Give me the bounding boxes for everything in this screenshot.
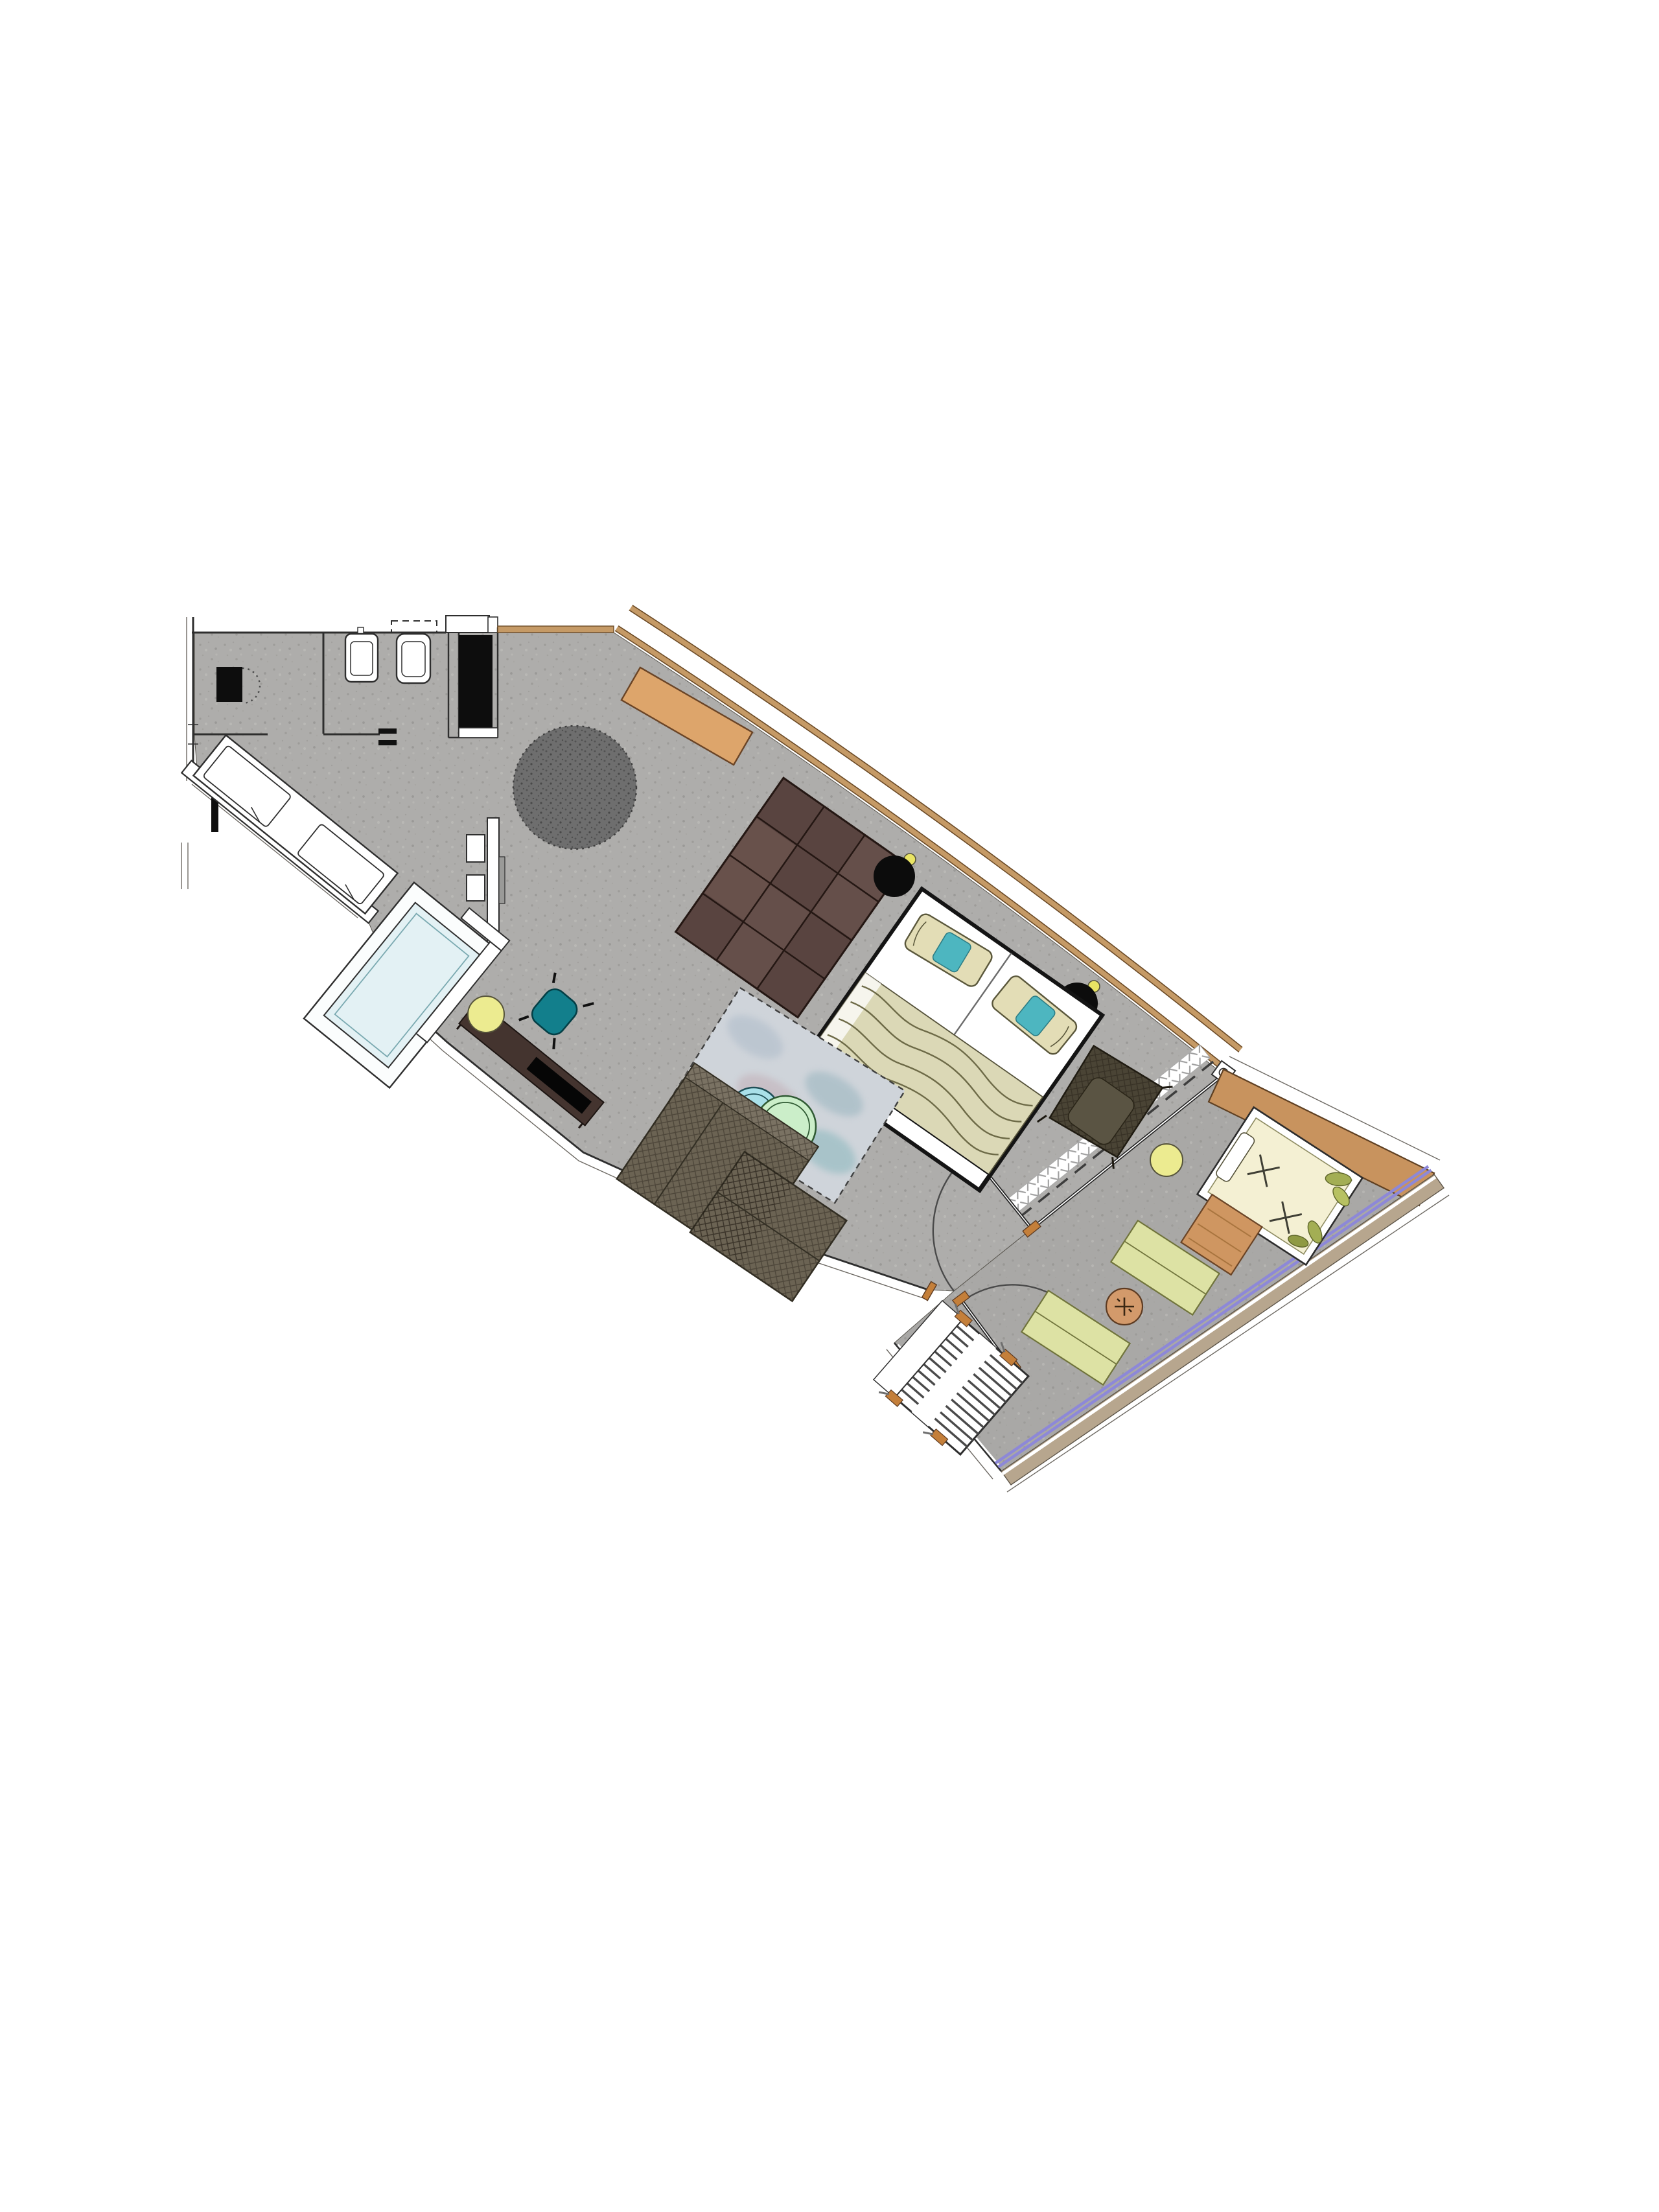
grill-side-table bbox=[1106, 1288, 1143, 1325]
round-rug bbox=[513, 726, 636, 849]
wardrobe bbox=[459, 635, 493, 728]
floor-plan-page bbox=[0, 0, 1659, 2212]
wardrobe-shelf bbox=[459, 728, 498, 738]
screen-rail bbox=[499, 857, 505, 903]
door-jamb-mark bbox=[378, 740, 397, 745]
entry-door-jamb bbox=[488, 617, 498, 633]
sink-tap bbox=[358, 627, 364, 634]
door-jamb-mark bbox=[378, 728, 397, 734]
facade-stub bbox=[498, 626, 614, 633]
entry-door-recess bbox=[446, 616, 489, 633]
stool bbox=[467, 835, 485, 862]
floor-plan-drawing bbox=[0, 0, 1659, 2212]
wc-fixture bbox=[216, 667, 242, 702]
stool bbox=[467, 875, 485, 901]
bedside-table-left bbox=[874, 856, 915, 897]
yellow-pouf bbox=[468, 996, 504, 1032]
outdoor-side-table-yellow bbox=[1150, 1144, 1183, 1176]
